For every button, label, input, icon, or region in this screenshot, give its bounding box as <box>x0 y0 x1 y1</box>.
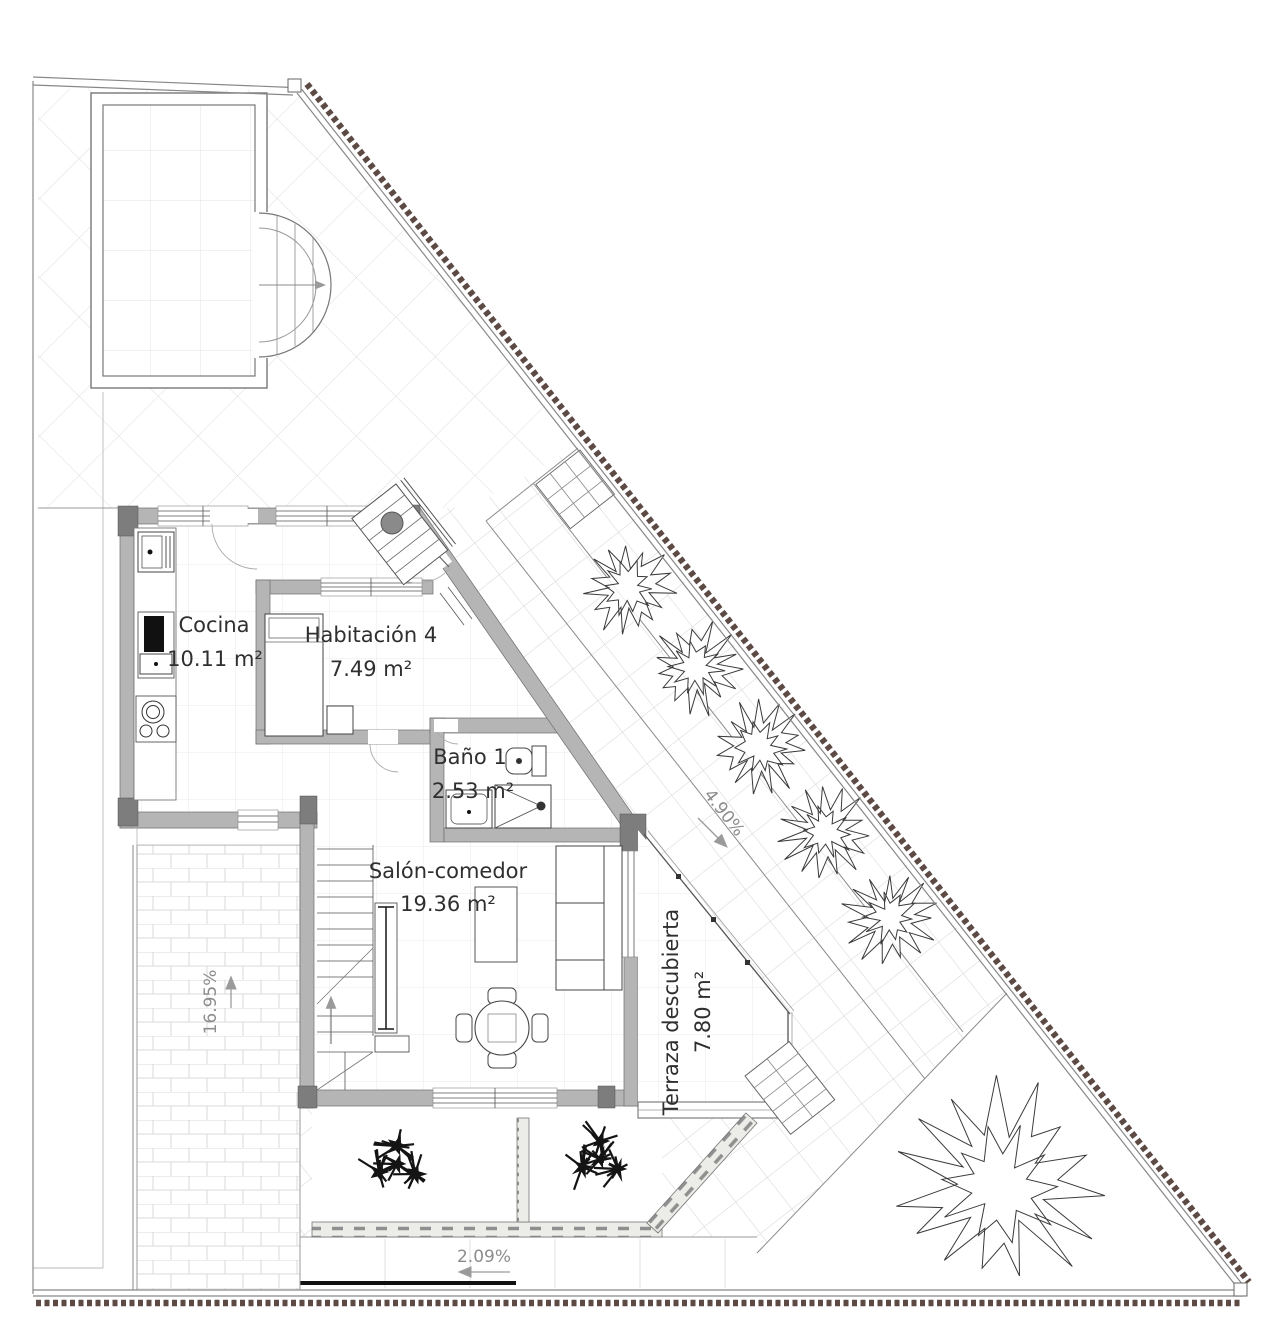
tv-bench <box>375 903 397 1033</box>
label-slope-driveway: 16.95% <box>201 970 221 1035</box>
label-salon-name: Salón-comedor <box>369 859 528 883</box>
label-salon-area: 19.36 m² <box>400 892 496 916</box>
stair-closet <box>375 1036 409 1052</box>
fence-post-top <box>288 79 301 92</box>
driveway-ramp <box>133 828 300 1290</box>
door-terrace-slider <box>622 851 640 957</box>
label-terraza-name: Terraza descubierta <box>659 909 683 1116</box>
label-habitacion4-name: Habitación 4 <box>305 623 438 647</box>
window-salon-south <box>433 1088 557 1108</box>
label-terraza-area: 7.80 m² <box>691 971 715 1053</box>
label-bano1-area: 2.53 m² <box>432 779 514 803</box>
label-slope-sidewalk: 2.09% <box>457 1247 511 1267</box>
entrance-column <box>381 512 403 534</box>
floor-plan-page: Cocina 10.11 m² Habitación 4 7.49 m² Bañ… <box>0 0 1280 1338</box>
fence-post-corner <box>1234 1283 1247 1296</box>
label-habitacion4-area: 7.49 m² <box>330 657 412 681</box>
cooktop-icon <box>136 696 176 742</box>
toilet-icon <box>506 746 546 776</box>
nightstand <box>327 706 353 734</box>
label-cocina-area: 10.11 m² <box>167 647 263 671</box>
label-bano1-name: Baño 1 <box>433 745 506 769</box>
door-driveway <box>238 810 278 830</box>
label-cocina-name: Cocina <box>178 613 249 637</box>
sofa <box>556 846 622 990</box>
fridge-icon <box>138 532 174 572</box>
floor-plan-svg: Cocina 10.11 m² Habitación 4 7.49 m² Bañ… <box>0 0 1280 1338</box>
